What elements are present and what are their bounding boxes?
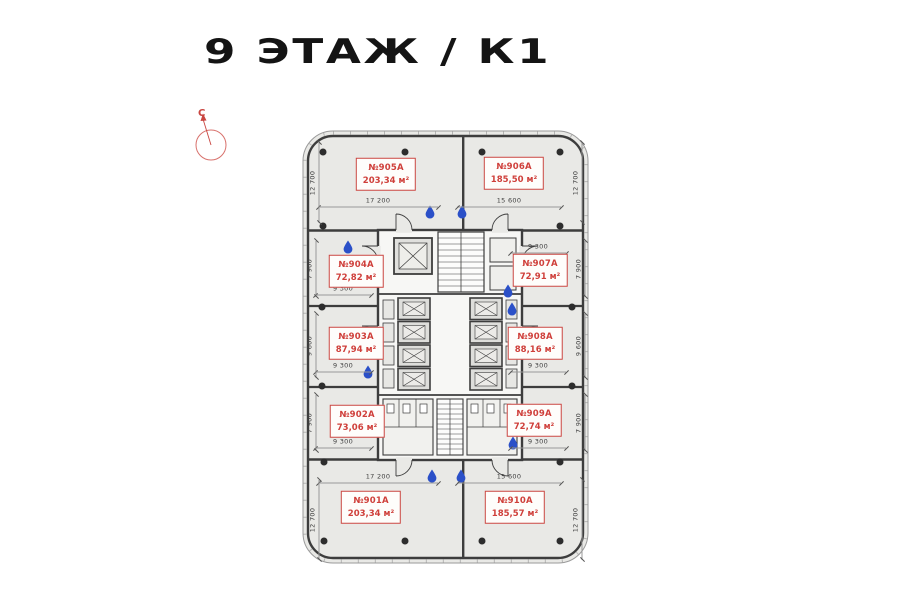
room-area: 185,57 м² [492, 508, 538, 521]
staircase-bottom-icon [437, 399, 463, 455]
room-area: 203,34 м² [363, 175, 409, 188]
dimension-line [582, 143, 583, 223]
dimension-label: 9 300 [510, 362, 566, 373]
dimension-text: 9 300 [333, 362, 353, 370]
dimension-line [585, 314, 586, 378]
water-drop-icon [343, 241, 353, 254]
north-label: С [198, 108, 205, 119]
column-dot [557, 149, 564, 156]
room-number: №902А [337, 409, 378, 422]
room-area: 88,16 м² [515, 344, 556, 357]
dimension-line [457, 483, 561, 484]
dimension-line [582, 480, 583, 560]
dimension-label: 9 300 [315, 438, 371, 449]
elevator-shaft-icon [470, 322, 502, 344]
north-arrow-icon: С [196, 108, 226, 160]
room-number: №905А [363, 162, 409, 175]
dimension-line [316, 314, 317, 378]
dimension-label: 12 700 [572, 480, 583, 560]
dimension-line [510, 372, 566, 373]
column-dot [321, 538, 328, 545]
dimension-line [316, 241, 317, 297]
room-label: №909А72,74 м² [507, 404, 562, 437]
dimension-text: 17 200 [366, 473, 391, 481]
column-dot [479, 538, 486, 545]
column-dot [321, 459, 328, 466]
dimension-label: 17 200 [318, 473, 438, 484]
room-label: №902А73,06 м² [330, 405, 385, 438]
water-drop-icon [503, 285, 513, 298]
dimension-text: 12 700 [572, 508, 580, 533]
room-number: №906А [491, 161, 537, 174]
dimension-text: 9 300 [333, 438, 353, 446]
room-area: 73,06 м² [337, 422, 378, 435]
room-number: №910А [492, 495, 538, 508]
elevator-shaft-icon [398, 369, 430, 391]
dimension-line [315, 448, 371, 449]
elevator-shaft-icon [398, 298, 430, 320]
column-dot [319, 304, 326, 311]
dimension-line [318, 483, 438, 484]
dimension-text: 12 700 [309, 508, 317, 533]
dimension-line [319, 480, 320, 560]
room-label: №901А203,34 м² [341, 491, 401, 524]
dimension-line [457, 207, 561, 208]
dimension-text: 7 900 [575, 413, 583, 433]
dimension-label: 12 700 [309, 480, 320, 560]
dimension-text: 9 600 [306, 336, 314, 356]
column-dot [557, 223, 564, 230]
dimension-text: 12 700 [309, 171, 317, 196]
dimension-line [315, 295, 371, 296]
service-core [378, 230, 522, 460]
room-number: №904А [336, 259, 377, 272]
dimension-text: 9 300 [528, 438, 548, 446]
elevator-shaft-icon [470, 298, 502, 320]
room-label: №908А88,16 м² [508, 327, 563, 360]
room-area: 203,34 м² [348, 508, 394, 521]
dimension-text: 9 300 [528, 243, 548, 251]
dimension-label: 12 700 [572, 143, 583, 223]
room-area: 87,94 м² [336, 344, 377, 357]
room-label: №905А203,34 м² [356, 158, 416, 191]
dimension-text: 7 900 [306, 259, 314, 279]
water-drop-icon [507, 303, 517, 316]
dimension-line [319, 143, 320, 223]
room-area: 185,50 м² [491, 174, 537, 187]
dimension-text: 17 200 [366, 197, 391, 205]
dimension-label: 15 600 [457, 197, 561, 208]
elevator-shaft-icon [470, 369, 502, 391]
dimension-label: 9 300 [510, 438, 566, 449]
room-area: 72,74 м² [514, 421, 555, 434]
dimension-line [585, 395, 586, 451]
dimension-label: 9 600 [575, 314, 586, 378]
elevator-shaft-icon [398, 345, 430, 367]
dimension-line [318, 207, 438, 208]
dimension-text: 9 600 [575, 336, 583, 356]
dimension-label: 9 300 [510, 243, 566, 254]
elevator-shaft-icon [394, 238, 432, 274]
column-dot [557, 459, 564, 466]
column-dot [319, 383, 326, 390]
dimension-line [315, 372, 371, 373]
column-dot [569, 304, 576, 311]
floor-plan: С [0, 0, 900, 604]
room-label: №903А87,94 м² [329, 327, 384, 360]
room-number: №908А [515, 331, 556, 344]
room-label: №907А72,91 м² [513, 254, 568, 287]
dimension-line [585, 241, 586, 297]
dimension-text: 9 300 [528, 362, 548, 370]
room-number: №909А [514, 408, 555, 421]
room-number: №903А [336, 331, 377, 344]
column-dot [320, 149, 327, 156]
dimension-line [510, 448, 566, 449]
dimension-label: 7 900 [306, 241, 317, 297]
dimension-text: 7 900 [306, 413, 314, 433]
dimension-text: 12 700 [572, 171, 580, 196]
room-area: 72,91 м² [520, 271, 561, 284]
room-label: №904А72,82 м² [329, 255, 384, 288]
dimension-label: 12 700 [309, 143, 320, 223]
dimension-label: 9 600 [306, 314, 317, 378]
elevator-shaft-icon [398, 322, 430, 344]
room-number: №907А [520, 258, 561, 271]
dimension-line [316, 395, 317, 451]
dimension-label: 7 900 [575, 395, 586, 451]
dimension-label: 9 300 [315, 362, 371, 373]
column-dot [479, 149, 486, 156]
dimension-label: 15 600 [457, 473, 561, 484]
room-number: №901А [348, 495, 394, 508]
staircase-icon [438, 232, 484, 292]
dimension-label: 17 200 [318, 197, 438, 208]
column-dot [402, 149, 409, 156]
dimension-label: 7 900 [575, 241, 586, 297]
room-label: №910А185,57 м² [485, 491, 545, 524]
elevator-shaft-icon [470, 345, 502, 367]
floor-plan-drawing: С [0, 0, 900, 604]
dimension-text: 7 900 [575, 259, 583, 279]
dimension-text: 15 600 [497, 197, 522, 205]
room-area: 72,82 м² [336, 272, 377, 285]
column-dot [402, 538, 409, 545]
room-label: №906А185,50 м² [484, 157, 544, 190]
column-dot [557, 538, 564, 545]
wc-block-left [383, 399, 433, 455]
dimension-label: 7 900 [306, 395, 317, 451]
dimension-text: 15 600 [497, 473, 522, 481]
column-dot [569, 383, 576, 390]
